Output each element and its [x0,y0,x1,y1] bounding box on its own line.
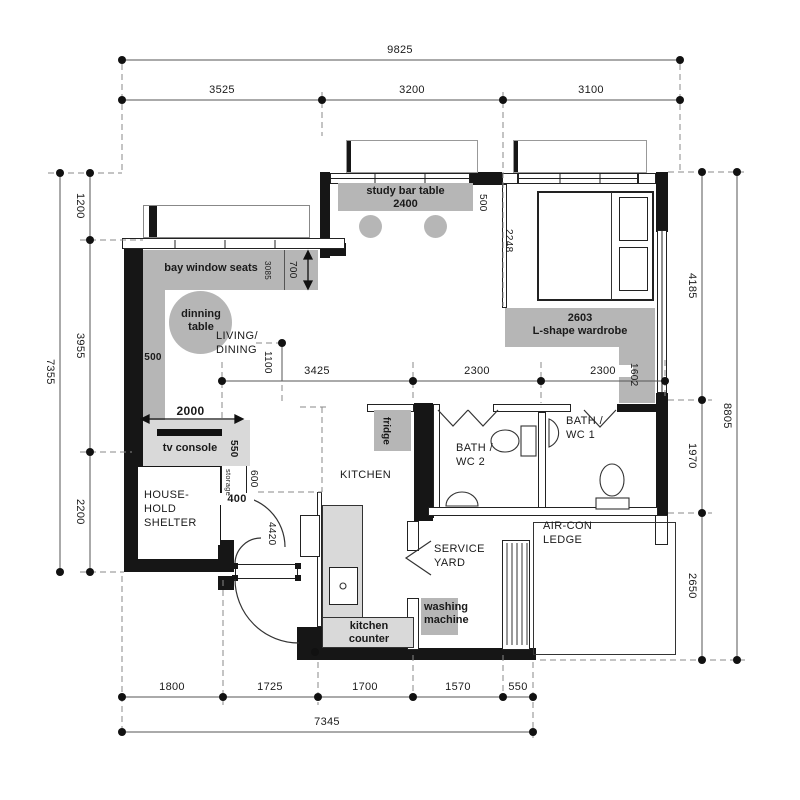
wc2-sink [446,492,478,506]
study-bar-table-label: study bar table 2400 [338,185,473,210]
wc1-toilet-tank [596,498,629,509]
dim-left-2: 3955 [74,316,86,376]
bath-wc2-label: BATH / WC 2 [456,442,508,470]
dim-bay-depth: 700 [287,253,298,287]
dim-left-1: 1200 [74,176,86,236]
dim-mid-1: 3425 [287,365,347,377]
storage-label: storage [224,464,233,502]
kitchen-label: KITCHEN [340,469,410,483]
bay-window-seats-label: bay window seats [145,262,277,275]
living-dining-label: LIVING/ DINING [216,330,271,358]
dim-left-3: 2200 [74,482,86,542]
dim-foyer: 4420 [266,511,277,557]
dim-bottom-4: 1570 [428,681,488,693]
dim-left-total: 7355 [44,342,56,402]
dim-study-depth: 500 [477,186,488,220]
dim-feature-wall: 500 [137,352,169,363]
tv-console-label: tv console [150,442,230,455]
aircon-ledge-label: AIR-CON LEDGE [543,520,607,548]
dim-top-3: 3100 [561,84,621,96]
dim-bottom-5: 550 [497,681,539,693]
plan-linework [0,0,800,800]
dim-bottom-2: 1725 [240,681,300,693]
dim-right-2: 1970 [686,426,698,486]
kitchen-sink-drain [340,583,346,589]
wardrobe-label: 2603 L-shape wardrobe [505,312,655,337]
dim-right-3: 2650 [686,556,698,616]
louvre-slats [507,543,527,645]
dim-top-1: 3525 [192,84,252,96]
wc2-toilet-tank [521,426,536,456]
dim-mid-2: 2300 [447,365,507,377]
entrance-door-arc-small [235,538,261,563]
dim-top-total: 9825 [370,44,430,56]
dim-right-1: 4185 [686,256,698,316]
kitchen-counter-label: kitchen counter [333,620,405,645]
washing-machine-label: washing machine [424,601,482,626]
dim-mid-3: 2300 [573,365,633,377]
wc2-door-mark [438,410,498,426]
fridge-label: fridge [380,413,392,449]
dim-wardrobe-return: 1602 [628,349,639,401]
dim-right-total: 8805 [721,386,733,446]
wc1-toilet-bowl [600,464,624,496]
household-shelter-label: HOUSE- HOLD SHELTER [140,489,220,530]
wc1-sink [549,419,559,447]
bath-wc1-label: BATH / WC 1 [566,415,618,443]
dim-tv-width: 2000 [163,404,218,418]
dim-bed-width: 2248 [503,216,514,266]
service-yard-door-mark [406,541,431,575]
dim-bottom-total: 7345 [297,716,357,728]
dim-bottom-3: 1700 [335,681,395,693]
dim-top-2: 3200 [382,84,442,96]
dim-bottom-1: 1800 [142,681,202,693]
service-yard-label: SERVICE YARD [434,543,494,571]
floor-plan: 9825 3525 3200 3100 7355 1200 3955 2200 … [0,0,800,800]
entrance-door-arc-large [235,579,299,643]
